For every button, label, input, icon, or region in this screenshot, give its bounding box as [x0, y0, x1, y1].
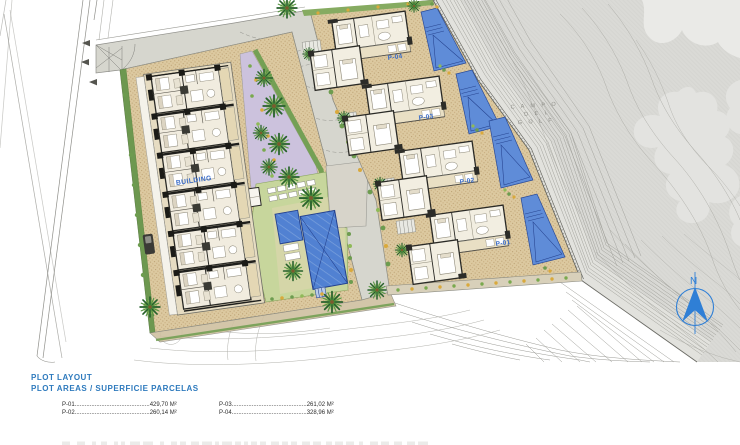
svg-text:PLOT LAYOUT: PLOT LAYOUT	[31, 373, 92, 382]
svg-text:P-02..........................: P-02....................................…	[62, 410, 177, 416]
svg-text:P-04..........................: P-04....................................…	[219, 410, 334, 416]
svg-text:N: N	[690, 276, 697, 287]
svg-text:PLOT AREAS / SUPERFICIE PARCEL: PLOT AREAS / SUPERFICIE PARCELAS	[31, 384, 199, 393]
svg-text:P-01..........................: P-01....................................…	[62, 402, 177, 408]
svg-text:P-03..........................: P-03....................................…	[219, 402, 334, 408]
